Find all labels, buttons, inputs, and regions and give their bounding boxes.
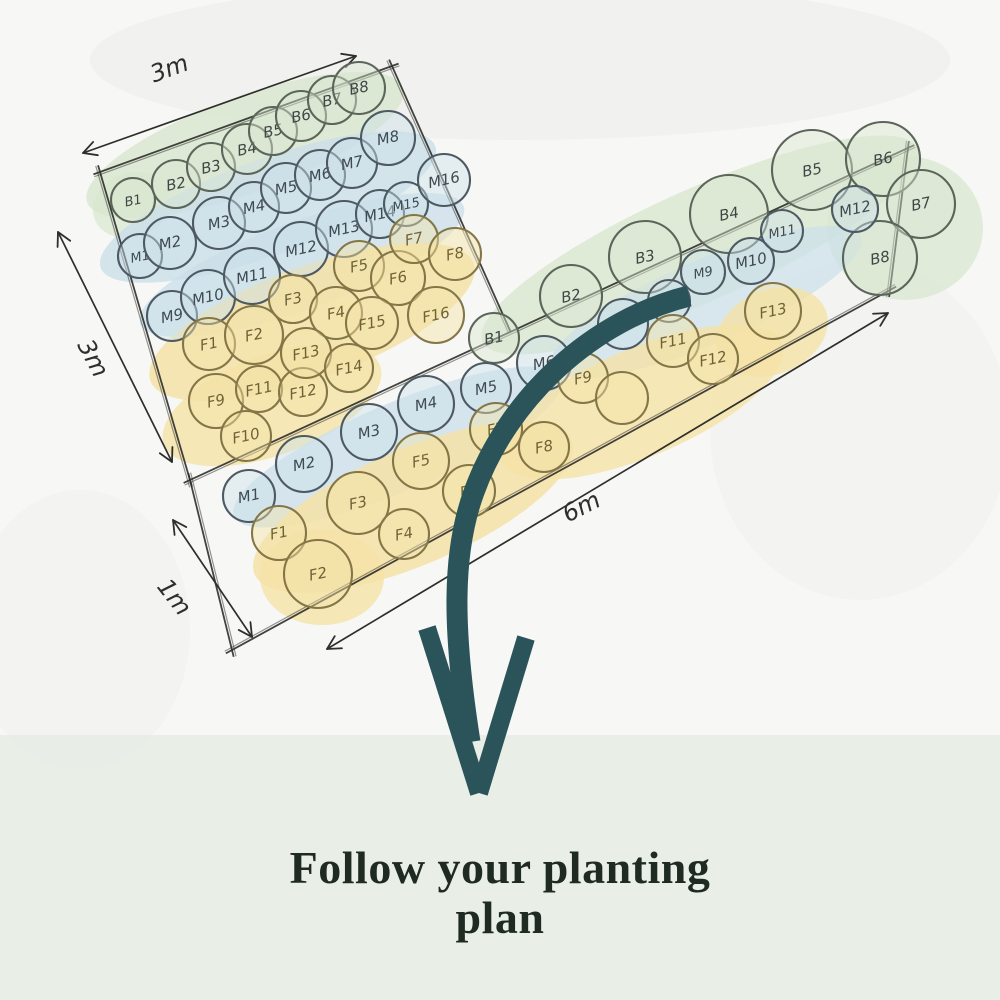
plant-label: F9 [205,390,227,411]
plant-label: F1 [198,333,220,354]
plant-label: F4 [325,302,347,323]
plant-label: F4 [393,523,415,544]
dimension-arrowhead [83,153,98,155]
plant-label: F8 [444,243,466,264]
dimension-arrowhead [327,648,342,649]
caption: Follow your planting plan [0,843,1000,942]
dimension-label: 3m [72,335,115,382]
dimension-label: 6m [558,486,605,528]
plant-label: F8 [533,436,555,457]
color-wash [0,490,190,770]
plant-label: F2 [307,563,329,584]
plant-label: F1 [268,522,290,543]
caption-line-2: plan [0,893,1000,943]
dimension-arrowhead [873,313,888,314]
plant-label: F3 [282,288,304,309]
plant-label: F9 [572,367,594,388]
plant-label: F5 [410,450,432,471]
plant-circle-right-unlabeled [596,372,648,424]
plant-label: F6 [387,267,409,288]
planting-plan-page: 3m3m1m6m B1B2B3B4B5B6B7B8M1M2M3M4M5M6M7M… [0,0,1000,1000]
caption-line-1: Follow your planting [0,843,1000,893]
plant-label: F2 [243,324,265,345]
plant-label: F3 [347,492,369,513]
plant-label: F5 [348,255,370,276]
